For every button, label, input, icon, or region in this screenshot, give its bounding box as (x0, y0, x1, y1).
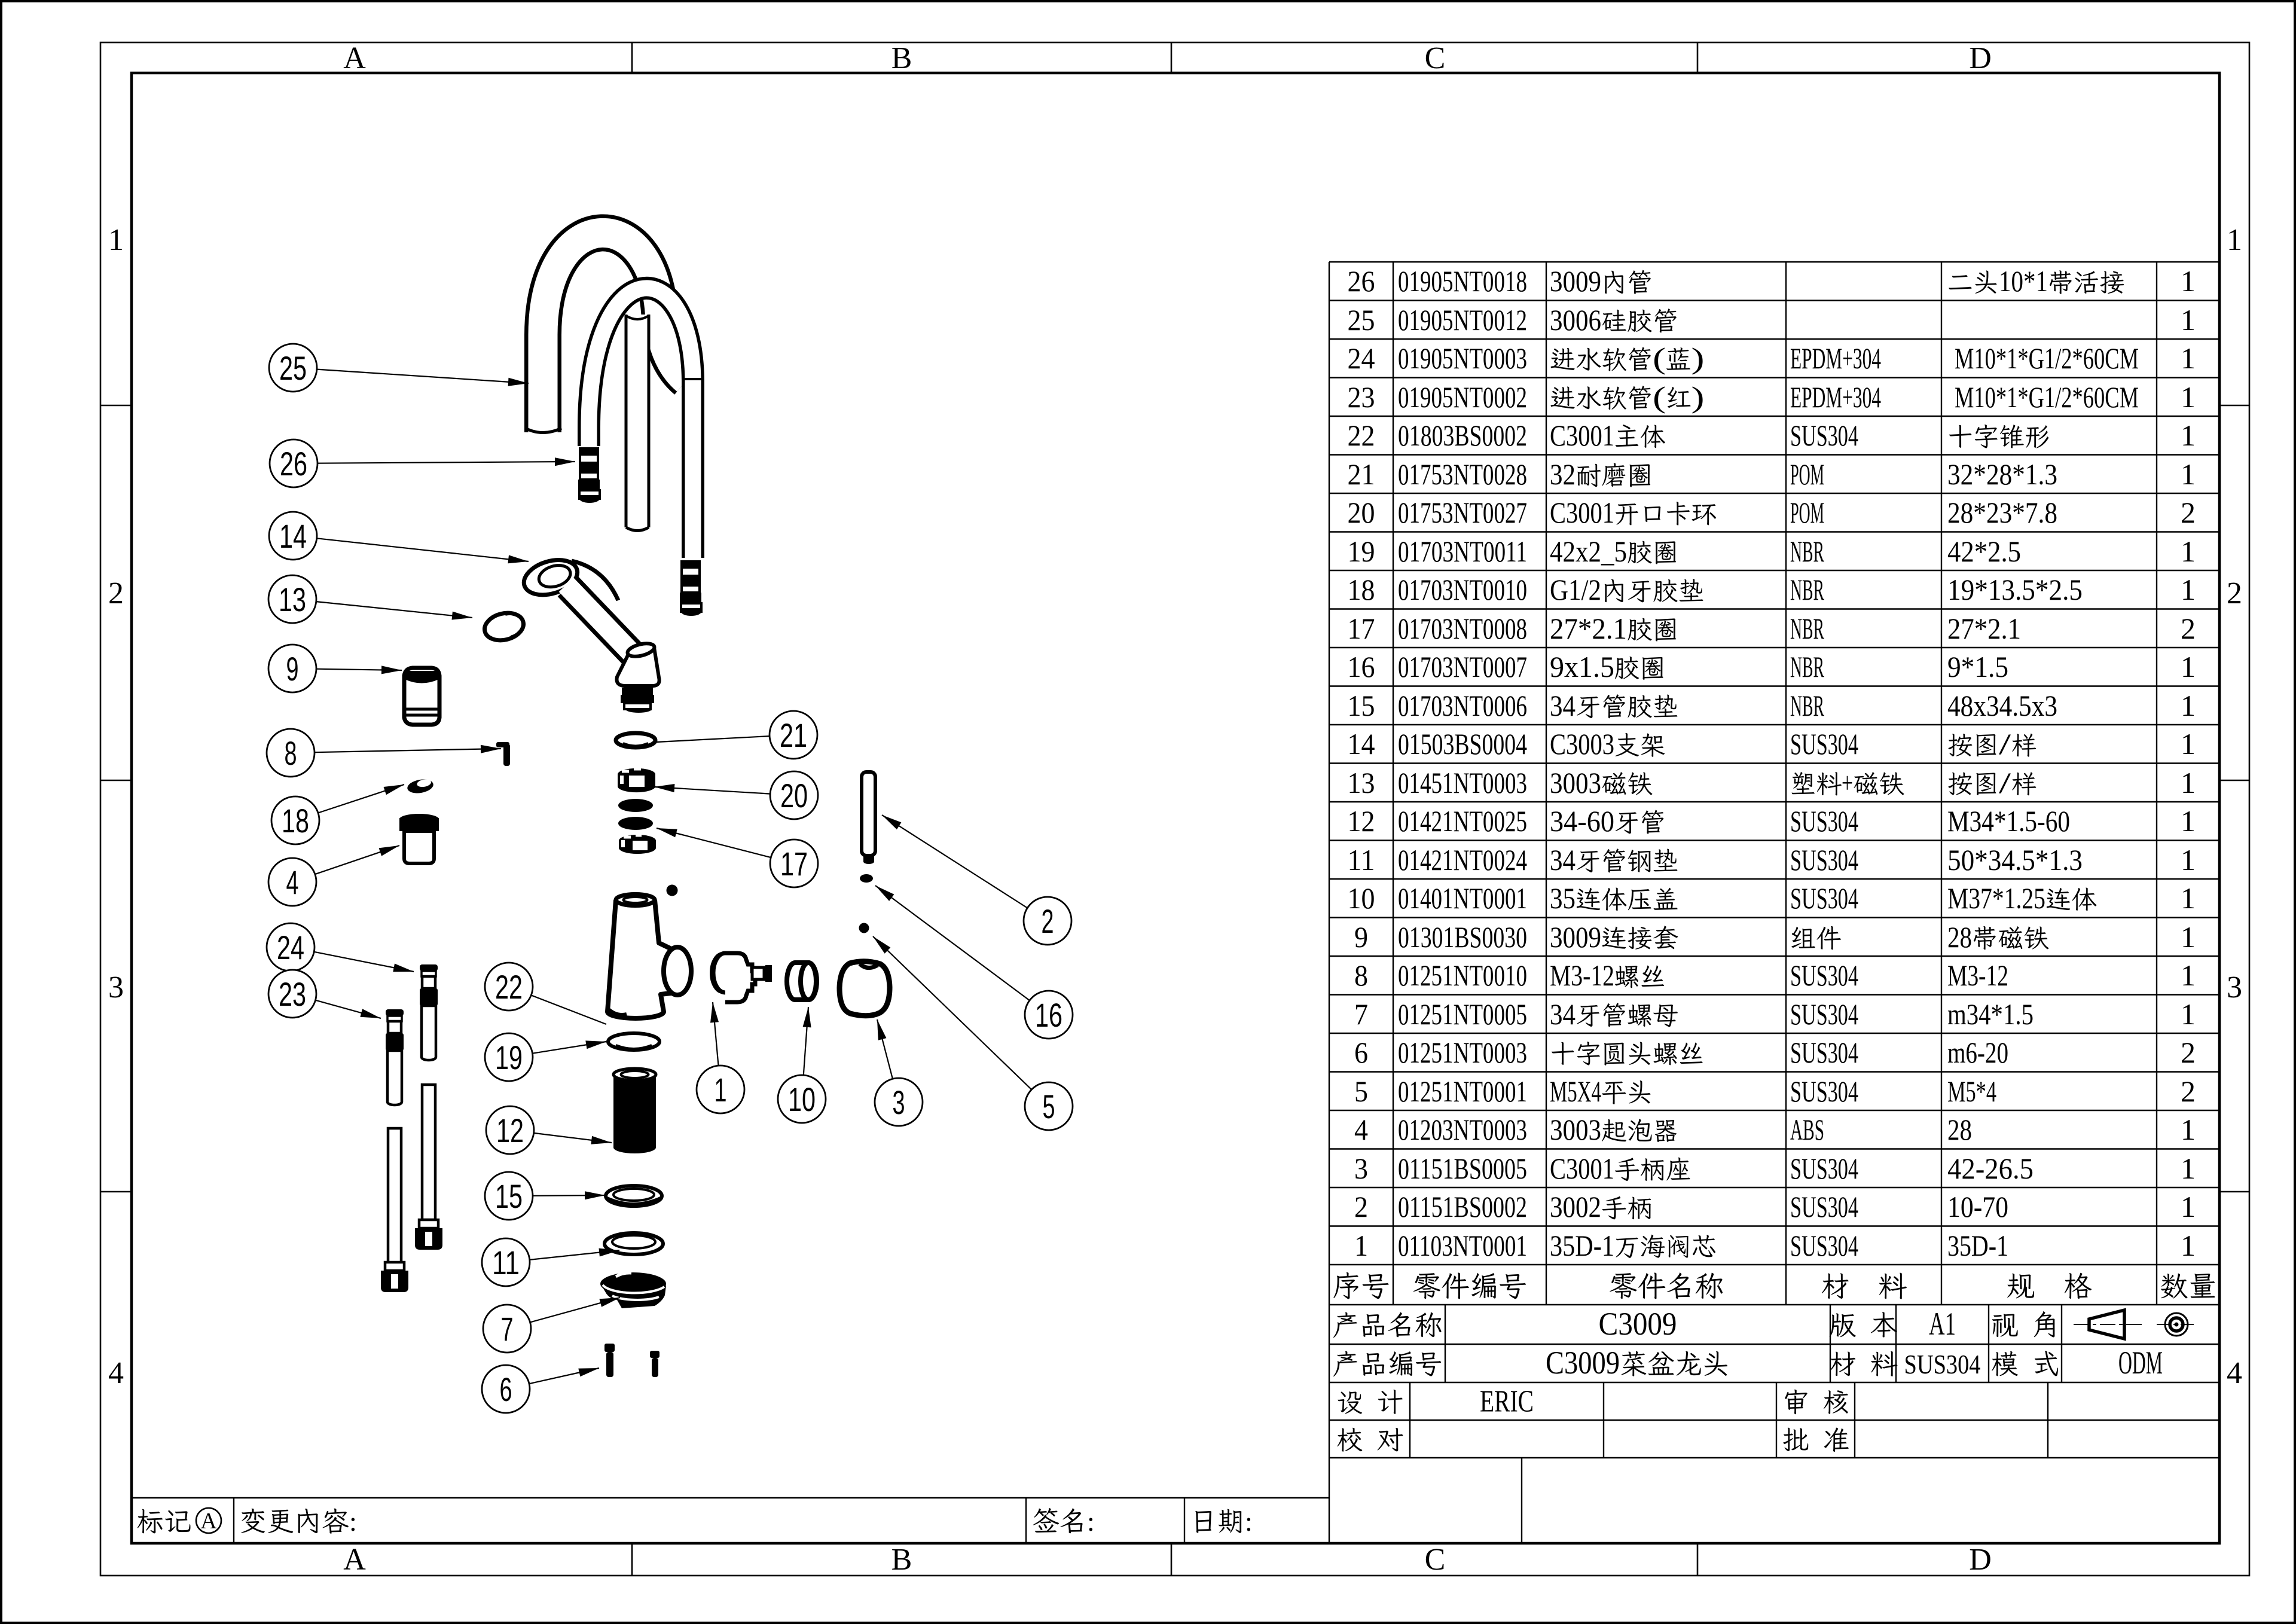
svg-text:M10*1*G1/2*60CM: M10*1*G1/2*60CM (1955, 341, 2139, 375)
svg-text:M34*1.5-60: M34*1.5-60 (1947, 804, 2070, 838)
svg-text:48x34.5x3: 48x34.5x3 (1947, 689, 2057, 722)
svg-text:25: 25 (1348, 303, 1375, 337)
svg-text:23: 23 (1348, 380, 1375, 414)
svg-text:7: 7 (501, 1310, 514, 1348)
svg-text:01503BS0004: 01503BS0004 (1398, 727, 1527, 761)
svg-text:B: B (891, 41, 912, 75)
svg-text:27*2.1: 27*2.1 (1550, 612, 1627, 645)
svg-text:3009: 3009 (1550, 920, 1601, 954)
svg-text:01251NT0005: 01251NT0005 (1398, 997, 1527, 1031)
svg-text:m6-20: m6-20 (1947, 1036, 2008, 1069)
svg-text:SUS304: SUS304 (1790, 727, 1858, 761)
svg-text:2: 2 (108, 576, 124, 610)
svg-text:1: 1 (2181, 997, 2196, 1031)
svg-text:2: 2 (1042, 902, 1054, 940)
svg-text:01905NT0012: 01905NT0012 (1398, 303, 1527, 337)
svg-text:1: 1 (2181, 920, 2196, 954)
svg-text:C3001: C3001 (1550, 1152, 1614, 1185)
svg-text:ODM: ODM (2118, 1345, 2163, 1381)
svg-text:4: 4 (286, 863, 299, 901)
svg-text:26: 26 (1348, 264, 1375, 298)
svg-text:2: 2 (1354, 1190, 1368, 1223)
svg-text:9*1.5: 9*1.5 (1947, 650, 2008, 683)
svg-text:NBR: NBR (1790, 612, 1824, 645)
svg-text:SUS304: SUS304 (1790, 958, 1858, 992)
svg-text:01203NT0003: 01203NT0003 (1398, 1113, 1527, 1146)
svg-text:01703NT0006: 01703NT0006 (1398, 689, 1527, 722)
svg-text:01251NT0010: 01251NT0010 (1398, 958, 1527, 992)
svg-text:21: 21 (780, 716, 807, 754)
svg-text:1: 1 (2181, 881, 2196, 915)
svg-text:SUS304: SUS304 (1904, 1350, 1981, 1379)
svg-text:1: 1 (2181, 573, 2196, 606)
svg-text:13: 13 (1348, 766, 1375, 799)
svg-text:24: 24 (1348, 341, 1375, 375)
svg-text:18: 18 (1348, 573, 1375, 606)
svg-text:1: 1 (2181, 727, 2196, 761)
svg-text:18: 18 (282, 802, 309, 840)
svg-text:3003: 3003 (1550, 766, 1601, 799)
svg-text:C3001: C3001 (1550, 419, 1614, 452)
svg-text:9: 9 (1354, 920, 1368, 954)
svg-text::: : (1245, 1506, 1253, 1537)
svg-text:7: 7 (1354, 997, 1368, 1031)
svg-text:22: 22 (495, 968, 523, 1006)
svg-text:35D-1: 35D-1 (1947, 1229, 2008, 1262)
svg-text:14: 14 (279, 517, 307, 555)
svg-text:13: 13 (279, 581, 306, 618)
svg-text:12: 12 (1348, 804, 1375, 838)
svg-text:27*2.1: 27*2.1 (1947, 612, 2021, 645)
svg-text:EPDM+304: EPDM+304 (1790, 341, 1881, 375)
svg-text:01421NT0024: 01421NT0024 (1398, 843, 1527, 877)
svg-text:SUS304: SUS304 (1790, 1074, 1858, 1108)
svg-text:2: 2 (2227, 576, 2242, 610)
svg-text:M5X4: M5X4 (1550, 1074, 1601, 1108)
svg-text:9: 9 (286, 650, 299, 688)
svg-text:19*13.5*2.5: 19*13.5*2.5 (1947, 573, 2083, 606)
svg-text:28: 28 (1947, 1113, 1972, 1146)
svg-text:NBR: NBR (1790, 689, 1824, 722)
svg-text:1: 1 (2181, 650, 2196, 683)
svg-text:3002: 3002 (1550, 1190, 1601, 1223)
svg-text:+: + (1842, 766, 1853, 799)
svg-text:01251NT0001: 01251NT0001 (1398, 1074, 1527, 1108)
svg-text:20: 20 (1348, 496, 1375, 529)
svg-text:SUS304: SUS304 (1790, 804, 1858, 838)
svg-text:5: 5 (1354, 1074, 1368, 1108)
svg-text:/: / (1999, 766, 2011, 799)
svg-text:23: 23 (279, 975, 306, 1013)
svg-text:16: 16 (1348, 650, 1375, 683)
svg-text:42x2_5: 42x2_5 (1550, 535, 1627, 568)
svg-text:1: 1 (1354, 1229, 1368, 1262)
svg-text:A1: A1 (1929, 1306, 1956, 1342)
svg-text:A: A (343, 41, 366, 75)
svg-text:1: 1 (2181, 264, 2196, 298)
svg-text:NBR: NBR (1790, 535, 1824, 568)
svg-text:SUS304: SUS304 (1790, 997, 1858, 1031)
svg-text:C: C (1425, 1543, 1446, 1577)
svg-text::: : (349, 1506, 357, 1537)
svg-text:10-70: 10-70 (1947, 1190, 2008, 1223)
svg-text:EPDM+304: EPDM+304 (1790, 380, 1881, 414)
svg-text:24: 24 (277, 929, 304, 966)
svg-text:01703NT0007: 01703NT0007 (1398, 650, 1527, 683)
svg-text:01803BS0002: 01803BS0002 (1398, 419, 1527, 452)
svg-text:A: A (200, 1509, 217, 1534)
svg-text:C3009: C3009 (1599, 1306, 1677, 1342)
svg-text:01401NT0001: 01401NT0001 (1398, 881, 1527, 915)
svg-text:19: 19 (495, 1039, 523, 1076)
svg-text:25: 25 (279, 349, 307, 387)
svg-text:35D-1: 35D-1 (1550, 1229, 1614, 1262)
svg-text:D: D (1969, 41, 1992, 75)
svg-text:01451NT0003: 01451NT0003 (1398, 766, 1527, 799)
svg-text:17: 17 (1348, 612, 1375, 645)
svg-text:01905NT0018: 01905NT0018 (1398, 264, 1527, 298)
svg-text:SUS304: SUS304 (1790, 881, 1858, 915)
svg-text:POM: POM (1790, 496, 1824, 529)
svg-text:2: 2 (2181, 496, 2196, 529)
svg-text:B: B (891, 1543, 912, 1577)
svg-text:15: 15 (1348, 689, 1375, 722)
svg-text:20: 20 (780, 777, 808, 814)
svg-text:A: A (343, 1543, 366, 1577)
svg-text:2: 2 (2181, 1036, 2196, 1069)
svg-text:14: 14 (1348, 727, 1375, 761)
svg-text:1: 1 (2181, 1190, 2196, 1223)
svg-text:NBR: NBR (1790, 573, 1824, 606)
svg-text:1: 1 (2181, 380, 2196, 414)
svg-text:M3-12: M3-12 (1550, 958, 1614, 992)
svg-text:17: 17 (780, 845, 808, 883)
svg-text:11: 11 (492, 1244, 520, 1281)
svg-text:M5*4: M5*4 (1947, 1074, 1996, 1108)
svg-text:1: 1 (2181, 1113, 2196, 1146)
svg-text:01753NT0027: 01753NT0027 (1398, 496, 1527, 529)
svg-text:01703NT0011: 01703NT0011 (1398, 535, 1527, 568)
svg-text:C3009: C3009 (1546, 1345, 1620, 1381)
svg-text:1: 1 (2181, 341, 2196, 375)
svg-text:01753NT0028: 01753NT0028 (1398, 457, 1527, 491)
svg-text:22: 22 (1348, 419, 1375, 452)
svg-text:SUS304: SUS304 (1790, 843, 1858, 877)
svg-text:2: 2 (2181, 612, 2196, 645)
svg-text:1: 1 (2181, 843, 2196, 877)
svg-text:16: 16 (1035, 996, 1062, 1034)
svg-text:G1/2: G1/2 (1550, 573, 1601, 606)
svg-text:3006: 3006 (1550, 303, 1601, 337)
svg-text:): ) (1692, 341, 1705, 375)
svg-text:4: 4 (1354, 1113, 1368, 1146)
svg-text:42*2.5: 42*2.5 (1947, 535, 2021, 568)
svg-text:SUS304: SUS304 (1790, 419, 1858, 452)
svg-text:1: 1 (108, 223, 124, 257)
svg-text:1: 1 (2181, 457, 2196, 491)
svg-text:): ) (1692, 380, 1705, 414)
svg-text:01703NT0008: 01703NT0008 (1398, 612, 1527, 645)
svg-text:3: 3 (108, 970, 124, 1005)
svg-text:10: 10 (788, 1080, 816, 1118)
svg-text:1: 1 (2181, 1229, 2196, 1262)
svg-text:01251NT0003: 01251NT0003 (1398, 1036, 1527, 1069)
svg-text:ERIC: ERIC (1480, 1385, 1534, 1419)
svg-text:01103NT0001: 01103NT0001 (1398, 1229, 1527, 1262)
svg-text:34: 34 (1550, 843, 1576, 877)
svg-text:5: 5 (1043, 1088, 1055, 1125)
svg-text:M37*1.25: M37*1.25 (1947, 881, 2045, 915)
svg-text:35: 35 (1550, 881, 1576, 915)
svg-text:8: 8 (1354, 958, 1368, 992)
svg-text:M10*1*G1/2*60CM: M10*1*G1/2*60CM (1955, 380, 2139, 414)
svg-text:34-60: 34-60 (1550, 804, 1614, 838)
svg-text:SUS304: SUS304 (1790, 1229, 1858, 1262)
svg-text:1: 1 (2181, 689, 2196, 722)
svg-text:10*1: 10*1 (1999, 264, 2048, 298)
svg-text:6: 6 (500, 1370, 512, 1408)
svg-text:01301BS0030: 01301BS0030 (1398, 920, 1527, 954)
svg-text:01905NT0003: 01905NT0003 (1398, 341, 1527, 375)
svg-text:6: 6 (1354, 1036, 1368, 1069)
svg-text:ABS: ABS (1790, 1113, 1824, 1146)
svg-text:1: 1 (2227, 223, 2242, 257)
svg-text:01421NT0025: 01421NT0025 (1398, 804, 1527, 838)
svg-text:POM: POM (1790, 457, 1824, 491)
svg-text:3009: 3009 (1550, 264, 1601, 298)
svg-text::: : (1087, 1506, 1095, 1537)
svg-text:1: 1 (2181, 804, 2196, 838)
svg-text:3: 3 (1354, 1152, 1368, 1185)
svg-text:34: 34 (1550, 689, 1576, 722)
svg-text:1: 1 (2181, 419, 2196, 452)
svg-text:3: 3 (893, 1083, 905, 1121)
svg-text:1: 1 (2181, 958, 2196, 992)
svg-text:28*23*7.8: 28*23*7.8 (1947, 496, 2057, 529)
svg-text:01703NT0010: 01703NT0010 (1398, 573, 1527, 606)
svg-text:11: 11 (1348, 843, 1375, 877)
svg-text:C3003: C3003 (1550, 727, 1614, 761)
svg-text:21: 21 (1348, 457, 1375, 491)
svg-text:28: 28 (1947, 920, 1972, 954)
svg-text:4: 4 (108, 1356, 124, 1390)
svg-text:(: ( (1653, 380, 1666, 414)
svg-text:1: 1 (715, 1071, 727, 1109)
svg-text:m34*1.5: m34*1.5 (1947, 997, 2034, 1031)
svg-text:9x1.5: 9x1.5 (1550, 650, 1614, 683)
svg-text:SUS304: SUS304 (1790, 1152, 1858, 1185)
svg-text:D: D (1969, 1543, 1992, 1577)
svg-text:01151BS0005: 01151BS0005 (1398, 1152, 1527, 1185)
svg-text:34: 34 (1550, 997, 1576, 1031)
svg-text:1: 1 (2181, 535, 2196, 568)
svg-text:32*28*1.3: 32*28*1.3 (1947, 457, 2057, 491)
svg-text:1: 1 (2181, 303, 2196, 337)
svg-text:(: ( (1653, 341, 1666, 375)
svg-text:2: 2 (2181, 1074, 2196, 1108)
svg-text:3003: 3003 (1550, 1113, 1601, 1146)
svg-text:15: 15 (495, 1177, 523, 1215)
svg-text:C: C (1425, 41, 1446, 75)
svg-text:19: 19 (1348, 535, 1375, 568)
svg-text:4: 4 (2227, 1356, 2242, 1390)
svg-text:50*34.5*1.3: 50*34.5*1.3 (1947, 843, 2083, 877)
svg-text:8: 8 (285, 734, 297, 772)
svg-text:C3001: C3001 (1550, 496, 1614, 529)
svg-text:01151BS0002: 01151BS0002 (1398, 1190, 1527, 1223)
svg-text:3: 3 (2227, 970, 2242, 1005)
svg-text:01905NT0002: 01905NT0002 (1398, 380, 1527, 414)
svg-text:SUS304: SUS304 (1790, 1190, 1858, 1223)
svg-text:NBR: NBR (1790, 650, 1824, 683)
svg-text:12: 12 (496, 1112, 524, 1149)
svg-text:10: 10 (1348, 881, 1375, 915)
svg-text:/: / (1999, 727, 2011, 761)
svg-text:1: 1 (2181, 1152, 2196, 1185)
svg-text:SUS304: SUS304 (1790, 1036, 1858, 1069)
svg-text:1: 1 (2181, 766, 2196, 799)
svg-text:26: 26 (280, 445, 307, 483)
svg-text:42-26.5: 42-26.5 (1947, 1152, 2034, 1185)
svg-text:M3-12: M3-12 (1947, 958, 2008, 992)
svg-text:32: 32 (1550, 457, 1576, 491)
